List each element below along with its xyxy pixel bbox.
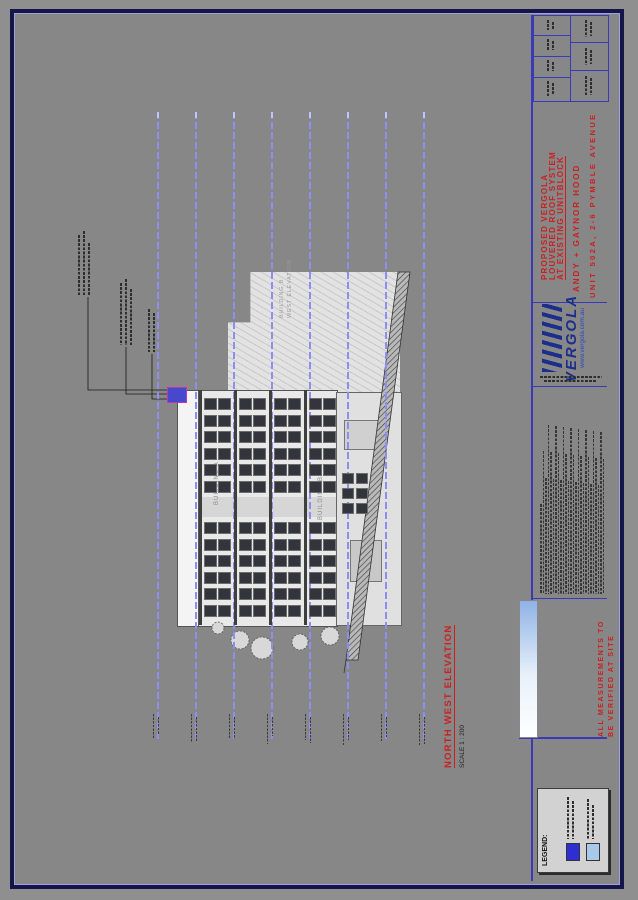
window bbox=[309, 555, 322, 567]
window bbox=[288, 555, 301, 567]
window bbox=[288, 605, 301, 617]
window bbox=[323, 431, 336, 443]
annotation-line bbox=[125, 279, 127, 345]
window bbox=[218, 415, 231, 427]
titleblock-left-border bbox=[531, 15, 533, 881]
window bbox=[288, 415, 301, 427]
notes-text-line bbox=[600, 432, 602, 594]
level-line-cap bbox=[271, 112, 273, 118]
window bbox=[218, 605, 231, 617]
titleblock-info-grid bbox=[533, 15, 609, 102]
window bbox=[204, 605, 217, 617]
window bbox=[323, 555, 336, 567]
window bbox=[274, 398, 287, 410]
floor-slab-line bbox=[234, 390, 237, 625]
notes-text-line bbox=[603, 459, 605, 594]
annex-window bbox=[342, 488, 354, 499]
floor-slab-line bbox=[199, 390, 202, 625]
level-label-line bbox=[272, 717, 273, 736]
level-line-cap bbox=[157, 112, 159, 118]
new-vergola-roof-mark bbox=[167, 387, 187, 403]
level-label-line bbox=[424, 717, 425, 744]
window bbox=[288, 481, 301, 493]
level-line bbox=[385, 112, 387, 742]
window bbox=[218, 555, 231, 567]
window bbox=[253, 448, 266, 460]
window bbox=[253, 555, 266, 567]
project-line-3: AT EXISTING UNITBLOCK bbox=[557, 156, 566, 280]
window bbox=[204, 555, 217, 567]
notes-text-line bbox=[568, 481, 570, 594]
window bbox=[239, 588, 252, 600]
window bbox=[253, 481, 266, 493]
level-label-line bbox=[305, 714, 306, 740]
window bbox=[204, 539, 217, 551]
window bbox=[218, 572, 231, 584]
grid-divider bbox=[571, 42, 608, 43]
level-line-cap bbox=[347, 112, 349, 118]
window bbox=[239, 555, 252, 567]
notes-text-line bbox=[548, 425, 550, 594]
window bbox=[204, 572, 217, 584]
vergola-louvre-stripes-icon bbox=[542, 304, 562, 372]
architectural-drawing-page: { "drawing_sheet": { "view": { "title": … bbox=[0, 0, 638, 900]
company-info-line-2 bbox=[544, 380, 596, 382]
titleblock-cell-text bbox=[585, 76, 587, 96]
annotation-line bbox=[88, 243, 90, 295]
annex-window bbox=[356, 473, 368, 484]
window bbox=[309, 605, 322, 617]
window bbox=[323, 572, 336, 584]
window bbox=[274, 464, 287, 476]
window bbox=[218, 431, 231, 443]
window bbox=[274, 415, 287, 427]
window bbox=[323, 481, 336, 493]
level-label-line bbox=[381, 714, 382, 741]
window bbox=[309, 415, 322, 427]
window bbox=[323, 398, 336, 410]
window bbox=[309, 448, 322, 460]
window bbox=[239, 431, 252, 443]
titleblock-cell-text bbox=[552, 83, 554, 95]
notes-text-line bbox=[540, 504, 542, 594]
legend-label-line bbox=[567, 797, 569, 839]
window bbox=[239, 398, 252, 410]
titleblock-cell-text bbox=[552, 62, 554, 71]
level-label-line bbox=[234, 717, 235, 739]
window bbox=[274, 605, 287, 617]
annotation-leader-lines bbox=[88, 297, 167, 399]
annex-box-upper bbox=[344, 420, 386, 450]
window bbox=[323, 522, 336, 534]
window bbox=[323, 588, 336, 600]
notes-text-line bbox=[550, 452, 552, 594]
grid-divider bbox=[534, 77, 570, 78]
window bbox=[274, 572, 287, 584]
window bbox=[239, 481, 252, 493]
company-info-line-1 bbox=[540, 376, 602, 378]
window bbox=[323, 539, 336, 551]
legend-label-line bbox=[592, 805, 594, 839]
grid-divider bbox=[534, 35, 570, 36]
annotation-line bbox=[130, 289, 132, 345]
window bbox=[218, 398, 231, 410]
window bbox=[204, 481, 217, 493]
legend-swatch-new-roof bbox=[566, 843, 580, 861]
annotation-line bbox=[148, 309, 150, 352]
legend-swatch-existing-roof bbox=[586, 843, 600, 861]
label-beyond-2: WEST ELEVATION bbox=[288, 259, 294, 318]
notes-text-line bbox=[575, 482, 577, 594]
sheet-inner: BUILDING A BUILDING B BUILDING B WEST EL… bbox=[14, 13, 620, 885]
notes-text-line bbox=[593, 431, 595, 594]
window bbox=[204, 522, 217, 534]
notes-text-line bbox=[565, 454, 567, 594]
level-line-cap bbox=[233, 112, 235, 118]
window bbox=[274, 522, 287, 534]
legend-title: LEGEND: bbox=[542, 835, 549, 867]
titleblock-cell-text bbox=[590, 50, 592, 64]
level-label-line bbox=[267, 714, 268, 744]
window bbox=[253, 572, 266, 584]
notes-text-line bbox=[598, 485, 600, 594]
window bbox=[323, 448, 336, 460]
window bbox=[218, 464, 231, 476]
window bbox=[309, 572, 322, 584]
legend-label-line bbox=[587, 799, 589, 839]
level-label-line bbox=[310, 717, 311, 743]
annotation-line bbox=[153, 313, 155, 352]
annex-window bbox=[356, 488, 368, 499]
grid-divider bbox=[570, 16, 571, 101]
window bbox=[309, 431, 322, 443]
grid-divider bbox=[534, 56, 570, 57]
window bbox=[323, 605, 336, 617]
view-title: NORTH WEST ELEVATION bbox=[444, 625, 455, 768]
titleblock-cell-text bbox=[552, 41, 554, 50]
window bbox=[288, 448, 301, 460]
window bbox=[288, 464, 301, 476]
legend-label-line bbox=[572, 801, 574, 839]
annex-window bbox=[356, 503, 368, 514]
notes-text-line bbox=[578, 429, 580, 594]
window bbox=[204, 415, 217, 427]
window bbox=[239, 415, 252, 427]
window bbox=[253, 415, 266, 427]
annotation-line bbox=[78, 235, 80, 295]
window bbox=[253, 398, 266, 410]
window bbox=[253, 431, 266, 443]
titleblock-cell-text bbox=[590, 78, 592, 95]
annex-box-lower bbox=[350, 540, 382, 582]
window bbox=[239, 464, 252, 476]
divider-3 bbox=[531, 598, 607, 599]
window bbox=[288, 431, 301, 443]
annex-window bbox=[342, 473, 354, 484]
level-line bbox=[195, 112, 197, 742]
titleblock-cell-text bbox=[547, 81, 549, 96]
drawing-sheet: BUILDING A BUILDING B BUILDING B WEST EL… bbox=[10, 9, 624, 889]
level-line bbox=[347, 112, 349, 742]
notes-text-line bbox=[590, 484, 592, 594]
annex-window bbox=[342, 503, 354, 514]
site-address: UNIT 502A, 2-6 PYMBLE AVENUE bbox=[589, 112, 597, 298]
titleblock-cell-text bbox=[585, 20, 587, 37]
level-label-line bbox=[158, 717, 159, 735]
notes-text-line bbox=[543, 451, 545, 594]
window bbox=[323, 464, 336, 476]
notes-text-line bbox=[563, 427, 565, 594]
window bbox=[288, 398, 301, 410]
window bbox=[204, 464, 217, 476]
floor-slab-line bbox=[304, 390, 307, 625]
window bbox=[309, 481, 322, 493]
window bbox=[204, 588, 217, 600]
notes-text-line bbox=[555, 426, 557, 594]
window bbox=[274, 448, 287, 460]
window bbox=[253, 522, 266, 534]
window bbox=[218, 448, 231, 460]
level-label-line bbox=[196, 717, 197, 742]
level-line bbox=[309, 112, 311, 742]
window bbox=[309, 539, 322, 551]
measurement-note-line-1: ALL MEASUREMENTS TO bbox=[598, 620, 605, 737]
notes-text-line bbox=[585, 430, 587, 594]
window bbox=[218, 522, 231, 534]
window bbox=[274, 481, 287, 493]
level-label-line bbox=[229, 714, 230, 739]
view-scale: SCALE 1 : 200 bbox=[460, 725, 467, 768]
window bbox=[239, 572, 252, 584]
window bbox=[309, 464, 322, 476]
window bbox=[239, 448, 252, 460]
titleblock-cell-text bbox=[547, 20, 549, 30]
window bbox=[309, 398, 322, 410]
titleblock-cell-text bbox=[547, 39, 549, 51]
background-building-sketch bbox=[228, 272, 400, 392]
level-line-cap bbox=[309, 112, 311, 118]
gradient-bar bbox=[519, 600, 538, 738]
annotation-line bbox=[83, 231, 85, 295]
window bbox=[323, 415, 336, 427]
legend-box: LEGEND: bbox=[537, 788, 609, 873]
grid-divider bbox=[571, 70, 608, 71]
notes-text-line bbox=[580, 456, 582, 594]
titleblock-cell-text bbox=[585, 48, 587, 65]
window bbox=[253, 605, 266, 617]
level-label-line bbox=[343, 714, 344, 745]
client-name: ANDY + GAYNOR HOOD bbox=[573, 164, 581, 292]
level-label-line bbox=[153, 714, 154, 738]
window bbox=[253, 588, 266, 600]
window bbox=[204, 448, 217, 460]
window bbox=[288, 572, 301, 584]
window bbox=[288, 522, 301, 534]
window bbox=[239, 605, 252, 617]
window bbox=[204, 398, 217, 410]
window bbox=[274, 555, 287, 567]
window bbox=[239, 522, 252, 534]
window bbox=[239, 539, 252, 551]
shrub-scribbles bbox=[212, 622, 339, 659]
window bbox=[274, 588, 287, 600]
level-line-cap bbox=[385, 112, 387, 118]
window bbox=[288, 539, 301, 551]
level-label-line bbox=[386, 717, 387, 737]
notes-text-line bbox=[545, 478, 547, 594]
window bbox=[218, 539, 231, 551]
titleblock-cell-text bbox=[552, 22, 554, 29]
notes-text-line bbox=[570, 428, 572, 594]
floor-slab-line bbox=[269, 390, 272, 625]
level-line bbox=[157, 112, 159, 742]
notes-text-line bbox=[573, 455, 575, 594]
level-line-cap bbox=[423, 112, 425, 118]
titleblock-cell-text bbox=[547, 60, 549, 72]
window bbox=[253, 464, 266, 476]
window bbox=[253, 539, 266, 551]
notes-text-line bbox=[588, 457, 590, 594]
window bbox=[218, 481, 231, 493]
measurement-note-line-2: BE VERIFIED AT SITE bbox=[608, 635, 615, 737]
notes-text-line bbox=[553, 479, 555, 594]
notes-text-line bbox=[583, 483, 585, 594]
notes-text-line bbox=[560, 480, 562, 594]
level-line bbox=[423, 112, 425, 742]
window bbox=[274, 539, 287, 551]
titleblock-cell-text bbox=[590, 22, 592, 36]
window bbox=[309, 522, 322, 534]
annotation-line bbox=[120, 283, 122, 345]
level-label-line bbox=[191, 714, 192, 743]
window bbox=[309, 588, 322, 600]
window bbox=[274, 431, 287, 443]
notes-text-line bbox=[595, 458, 597, 594]
label-beyond-1: BUILDING B bbox=[280, 279, 286, 318]
level-label-line bbox=[348, 717, 349, 740]
window bbox=[204, 431, 217, 443]
level-line-cap bbox=[195, 112, 197, 118]
window bbox=[288, 588, 301, 600]
window bbox=[218, 588, 231, 600]
notes-text-line bbox=[558, 453, 560, 594]
level-label-line bbox=[419, 714, 420, 746]
